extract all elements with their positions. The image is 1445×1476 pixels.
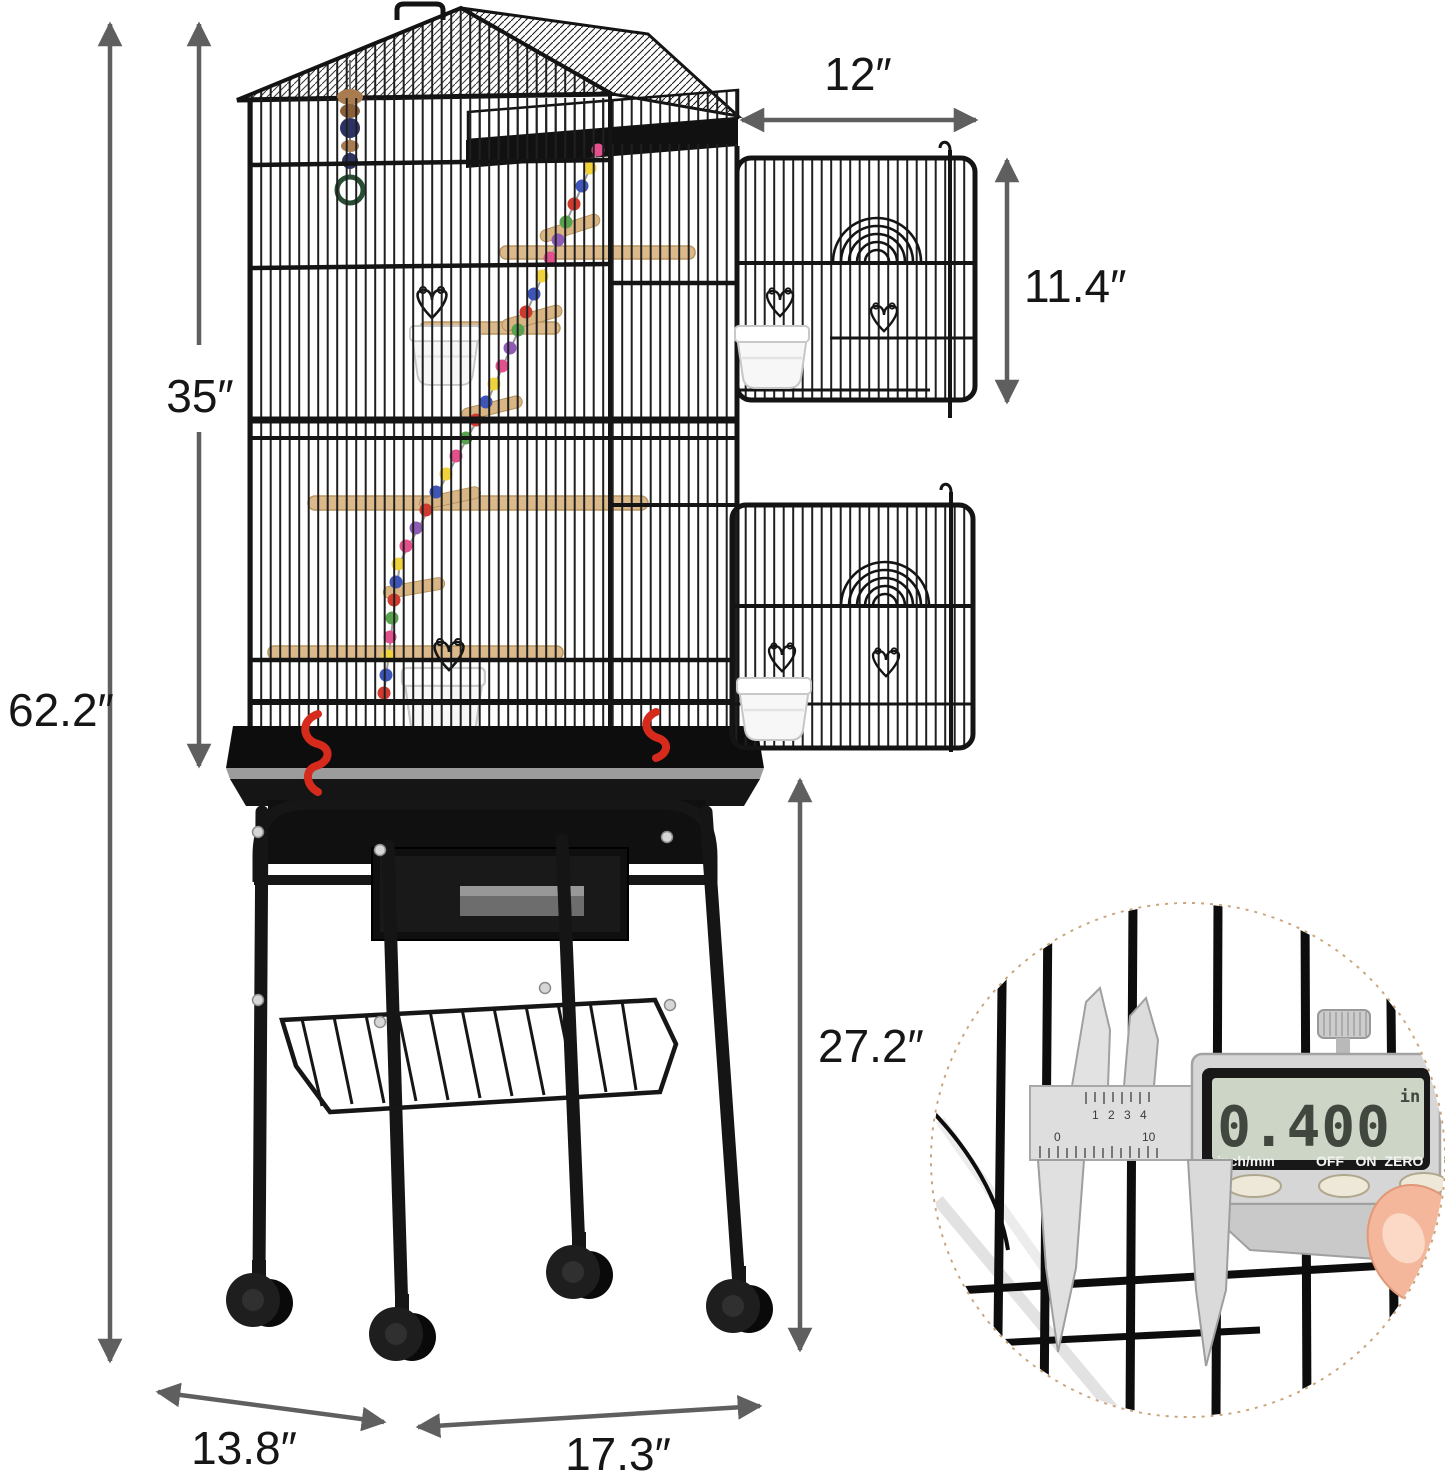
caliper-button-label-zero: ZERO xyxy=(1385,1153,1424,1169)
pullout-drawer xyxy=(372,848,628,940)
dimension-door-width: 12″ xyxy=(742,48,976,120)
upper-open-door xyxy=(735,142,975,418)
dimension-label-base-width: 17.3″ xyxy=(565,1428,671,1476)
birdcage-illustration xyxy=(226,4,764,806)
feeder-cup-lower-door xyxy=(737,678,811,740)
dimension-cage-height: 35″ xyxy=(166,24,233,766)
caliper-button-onoff xyxy=(1319,1175,1369,1197)
caster-wheel xyxy=(369,1294,436,1361)
caster-wheel xyxy=(546,1232,613,1299)
dimension-base-width: 17.3″ xyxy=(418,1406,760,1476)
cage-tower-bars xyxy=(250,98,610,755)
dimension-label-overall-height: 62.2″ xyxy=(8,684,114,736)
caliper-scale-ten: 10 xyxy=(1142,1130,1156,1144)
caliper-button-inchmm xyxy=(1227,1175,1281,1197)
stand-illustration xyxy=(226,800,773,1361)
caster-wheel xyxy=(706,1266,773,1333)
caliper-display-value: 0.400 xyxy=(1217,1095,1391,1160)
product-dimension-figure: 62.2″ 35″ 12″ 11.4″ 27.2″ 13.8″ 17.3″ xyxy=(0,0,1445,1476)
caster-wheel xyxy=(226,1260,293,1327)
caliper-thumbscrew xyxy=(1318,1010,1370,1038)
dimension-stand-height: 27.2″ xyxy=(800,780,924,1350)
dimension-label-cage-height: 35″ xyxy=(166,370,233,422)
caliper-scale-zero: 0 xyxy=(1054,1130,1061,1144)
dimension-base-depth: 13.8″ xyxy=(158,1392,384,1474)
caliper-button-label-off: OFF xyxy=(1316,1153,1344,1169)
caliper-button-label-on: ON xyxy=(1356,1153,1377,1169)
cage-base xyxy=(226,712,764,806)
caliper-display-unit: in xyxy=(1400,1087,1420,1107)
dimension-label-door-width: 12″ xyxy=(824,48,891,100)
caliper-scale-top: 1 2 3 4 xyxy=(1092,1108,1150,1122)
caliper-inset: 1 2 3 4 0 10 0.400 in inch/mm xyxy=(931,903,1445,1430)
dimension-label-door-height: 11.4″ xyxy=(1024,260,1126,312)
dimension-overall-height: 62.2″ xyxy=(8,24,114,1361)
dimension-label-base-depth: 13.8″ xyxy=(191,1422,297,1474)
caliper-beam xyxy=(1030,1086,1200,1160)
feeder-cup-upper-door xyxy=(735,326,809,388)
storage-basket xyxy=(282,1000,676,1112)
cage-right-section-bars xyxy=(610,144,737,755)
dimension-label-stand-height: 27.2″ xyxy=(818,1020,924,1072)
lower-open-door xyxy=(732,484,973,752)
dimension-door-height: 11.4″ xyxy=(1007,160,1126,402)
